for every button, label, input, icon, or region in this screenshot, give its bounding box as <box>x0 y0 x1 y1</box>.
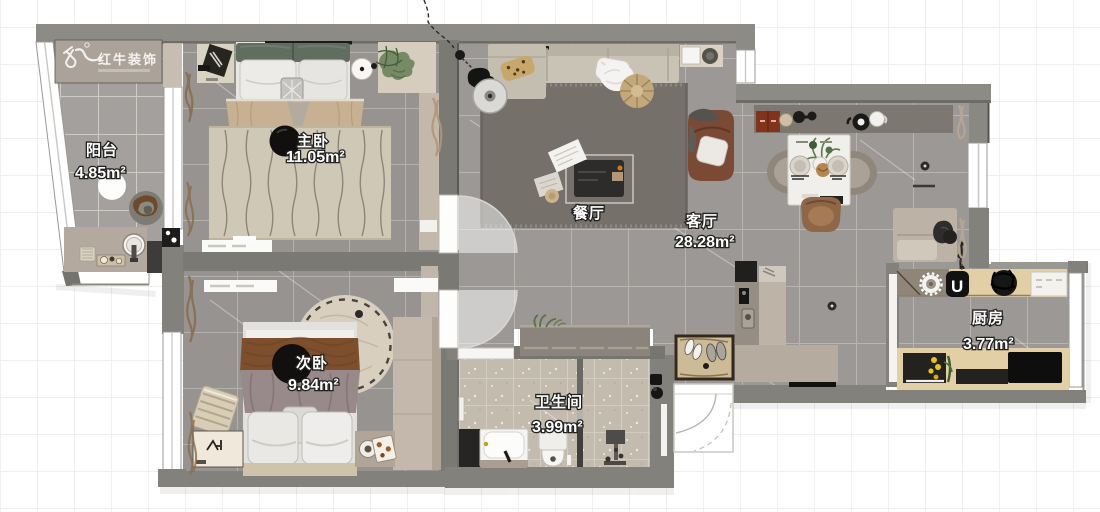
svg-text:4.85m²: 4.85m² <box>75 165 126 182</box>
svg-text:阳台: 阳台 <box>86 141 118 159</box>
svg-text:U: U <box>951 277 963 296</box>
svg-text:3.99m²: 3.99m² <box>532 419 583 436</box>
svg-text:11.05m²: 11.05m² <box>286 149 345 166</box>
svg-text:客厅: 客厅 <box>685 212 718 230</box>
svg-text:卫生间: 卫生间 <box>535 393 583 411</box>
svg-text:28.28m²: 28.28m² <box>675 234 735 251</box>
svg-text:红牛装饰: 红牛装饰 <box>98 52 158 67</box>
svg-text:3.77m²: 3.77m² <box>963 336 1014 353</box>
svg-text:餐厅: 餐厅 <box>573 204 605 222</box>
svg-text:次卧: 次卧 <box>296 354 328 372</box>
svg-text:9.84m²: 9.84m² <box>288 377 339 394</box>
svg-text:主卧: 主卧 <box>297 132 329 150</box>
svg-text:厨房: 厨房 <box>972 309 1004 327</box>
